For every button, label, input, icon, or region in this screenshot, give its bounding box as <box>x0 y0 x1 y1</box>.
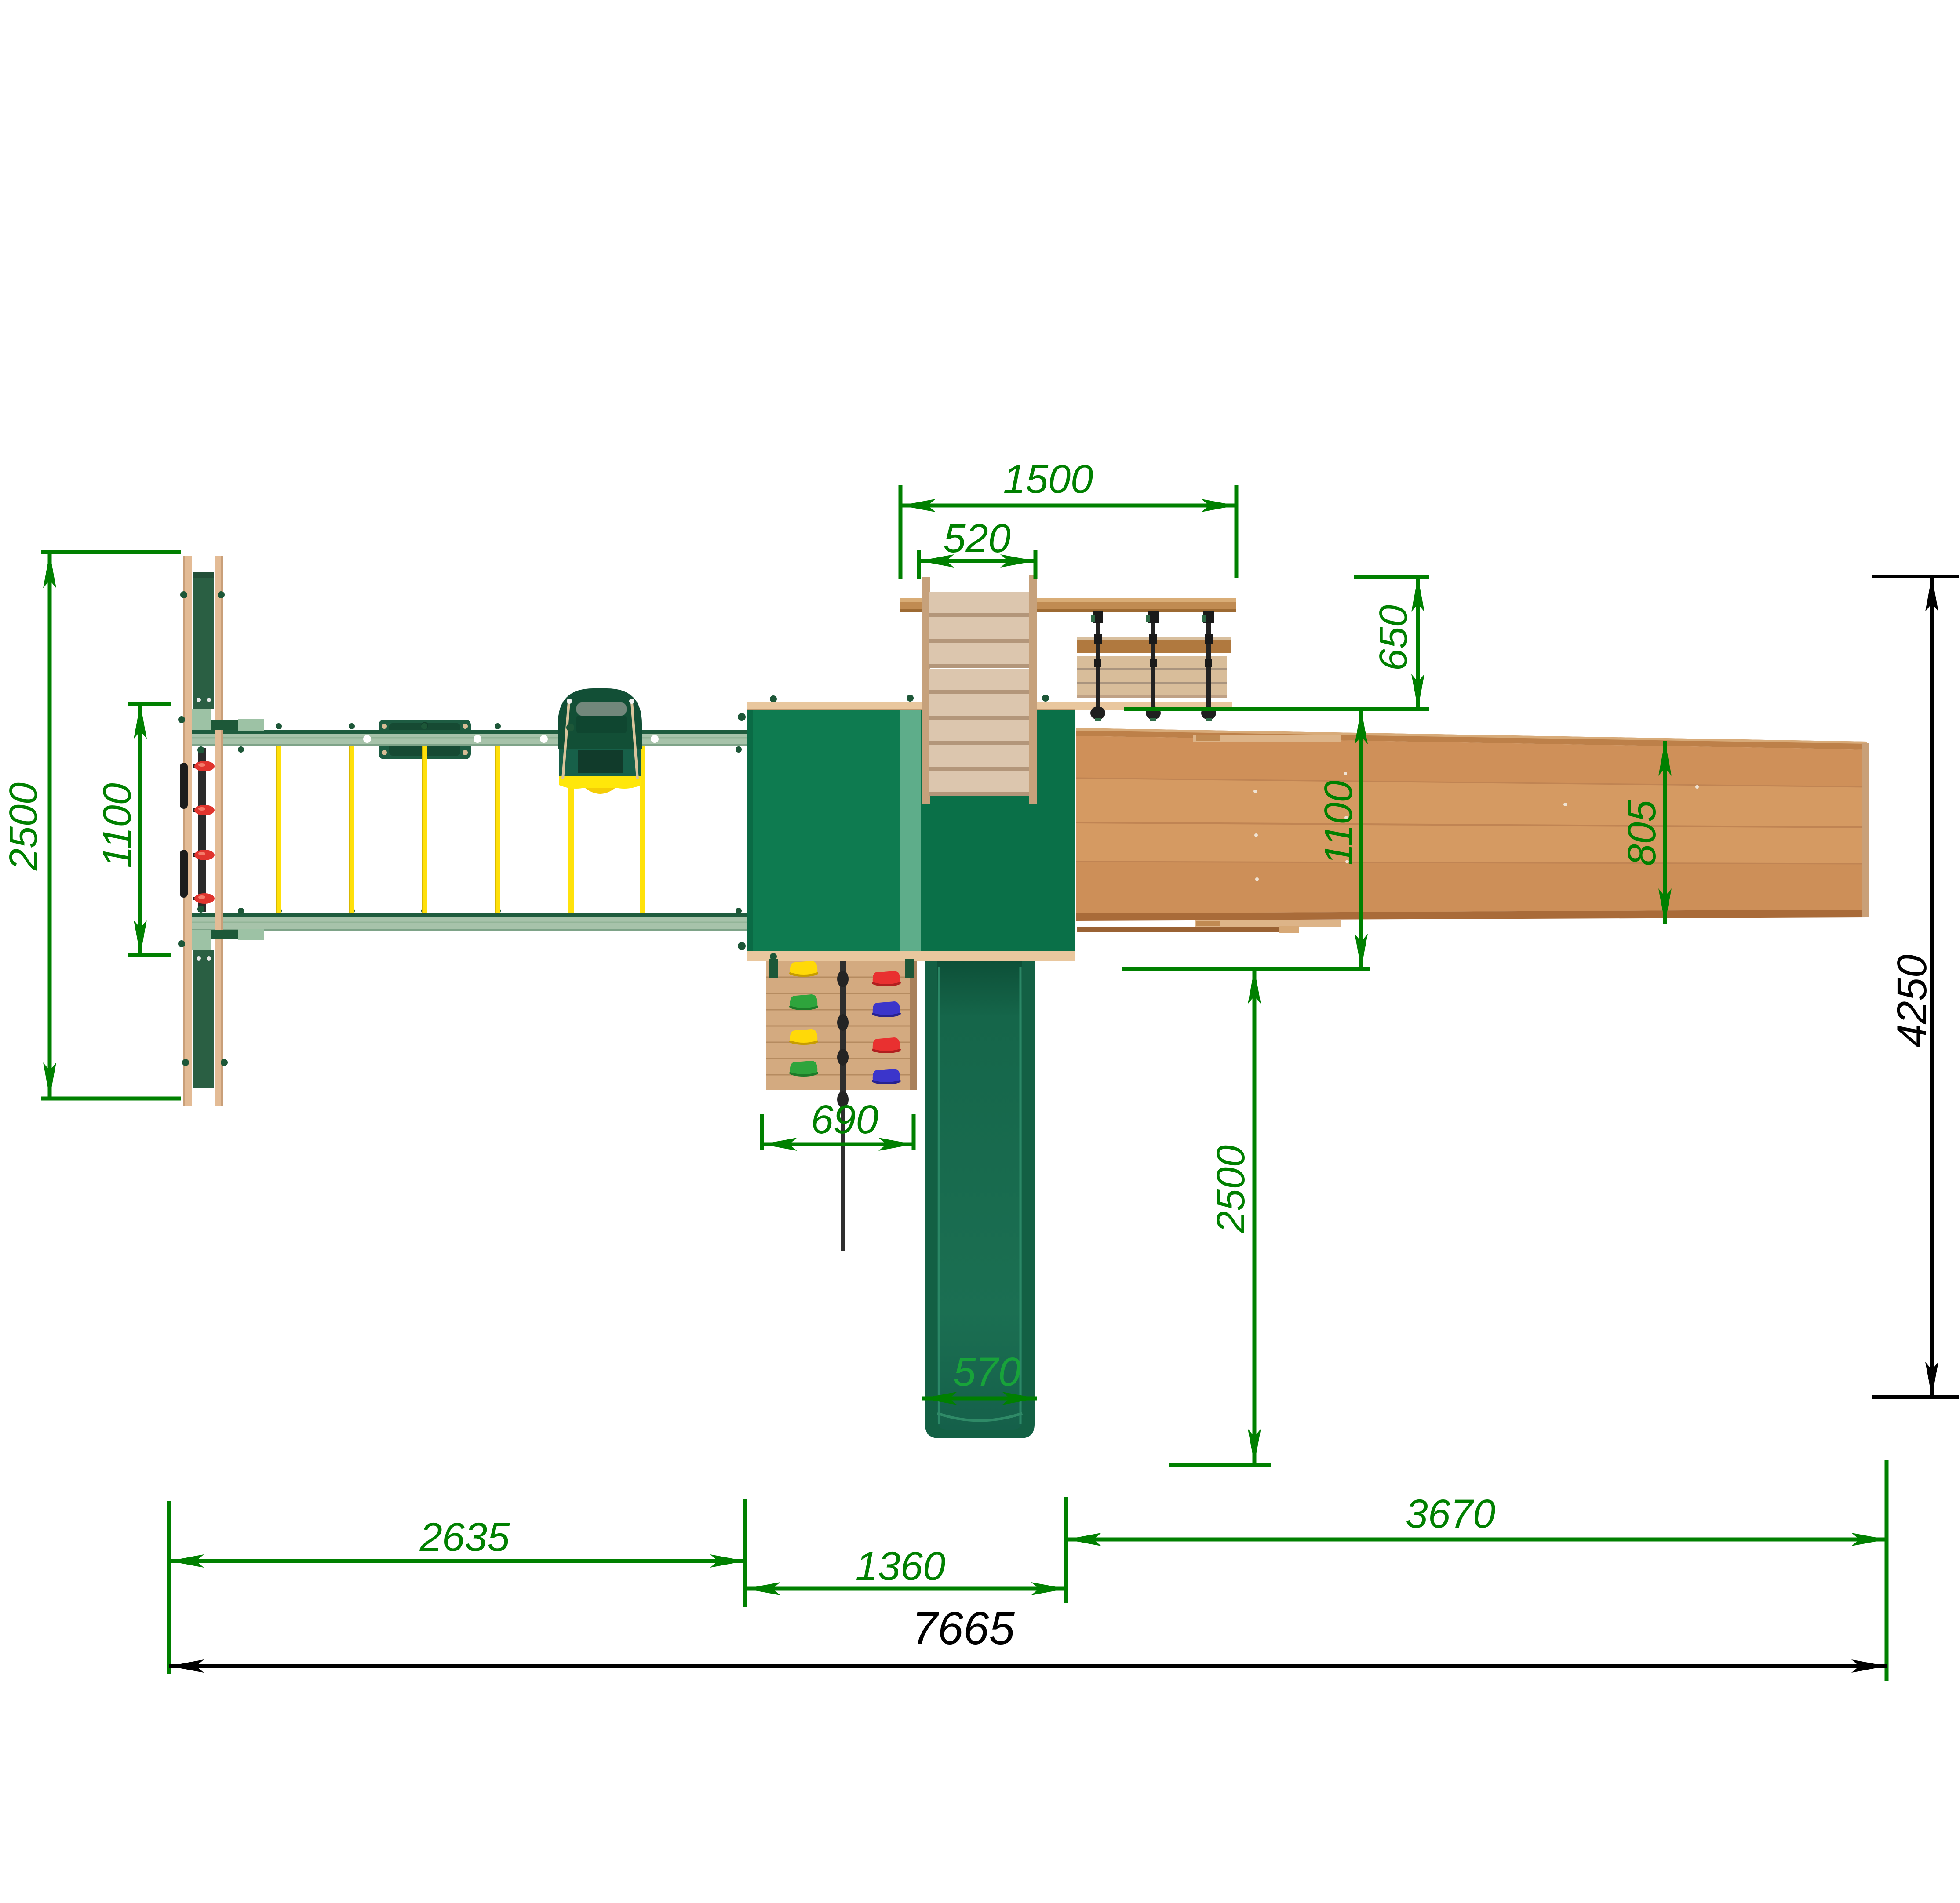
svg-text:690: 690 <box>811 1097 878 1142</box>
svg-text:805: 805 <box>1620 800 1664 866</box>
svg-text:7665: 7665 <box>912 1603 1015 1654</box>
svg-text:650: 650 <box>1372 605 1416 671</box>
svg-text:1100: 1100 <box>95 783 139 868</box>
svg-text:4250: 4250 <box>1889 954 1935 1048</box>
svg-text:1500: 1500 <box>1003 457 1093 502</box>
svg-text:3670: 3670 <box>1406 1492 1496 1536</box>
svg-text:2500: 2500 <box>2 782 46 871</box>
svg-text:1100: 1100 <box>1317 780 1361 866</box>
svg-text:1360: 1360 <box>856 1544 946 1589</box>
svg-text:2635: 2635 <box>419 1515 510 1560</box>
svg-text:570: 570 <box>953 1350 1021 1394</box>
svg-text:2500: 2500 <box>1209 1145 1253 1233</box>
svg-text:520: 520 <box>943 516 1011 561</box>
